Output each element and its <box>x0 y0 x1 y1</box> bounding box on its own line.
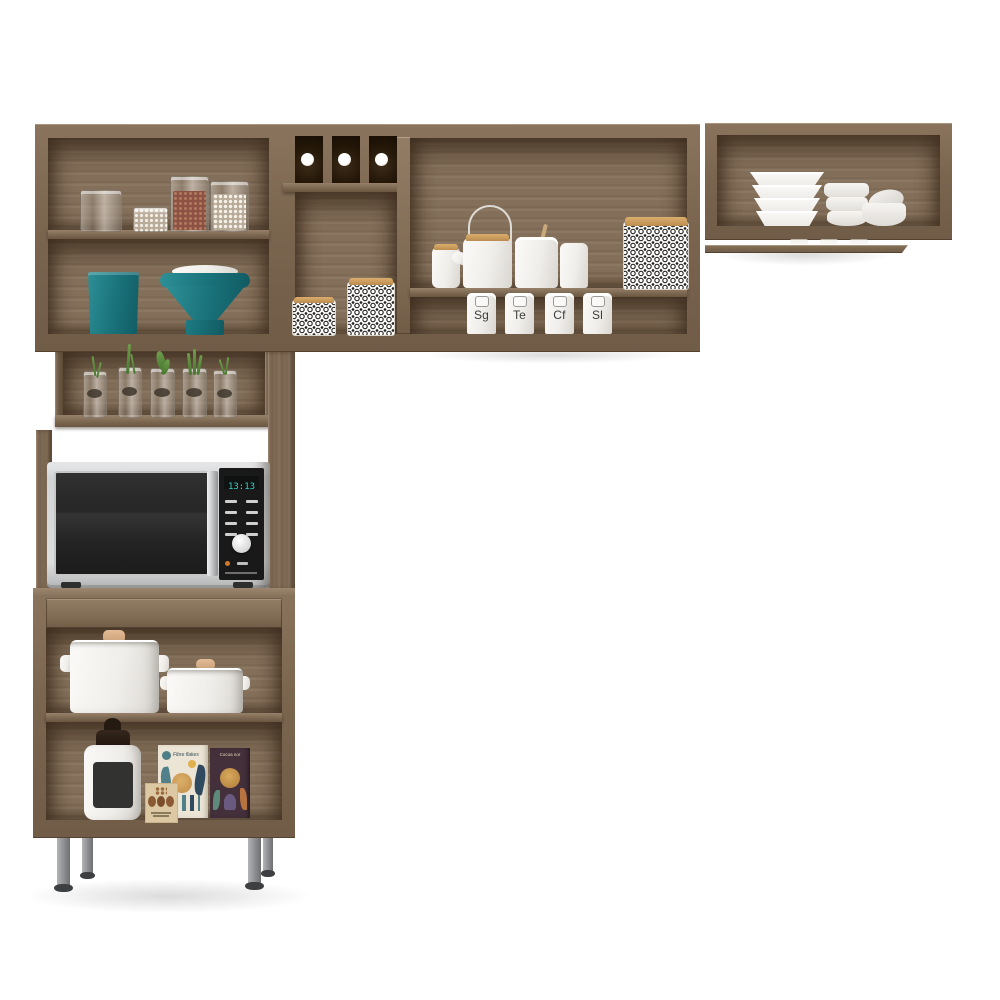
microwave-brand-line <box>225 572 257 574</box>
canister-label: Sl <box>583 308 612 322</box>
teapot-body <box>463 237 512 288</box>
square-bowl <box>756 211 818 226</box>
herb-jar <box>150 368 175 418</box>
cocoa-art-leaf <box>224 794 236 810</box>
canister-clamp <box>513 296 527 307</box>
wine-slot <box>369 136 397 183</box>
cabinet-leg-back-right <box>263 838 273 874</box>
wine-bottle <box>375 153 388 166</box>
leg-foot <box>261 870 275 877</box>
kitchen-cabinet-product-photo: Sg Te Cf Sl <box>0 0 1000 1000</box>
cup-glimpse <box>820 239 838 244</box>
spice-canister-sl: Sl <box>583 293 612 334</box>
herb-jar <box>182 368 207 418</box>
square-bowl <box>752 185 822 200</box>
cereal-art-leaf <box>192 764 208 795</box>
tower-right-post <box>268 352 295 590</box>
bean-cluster <box>155 787 167 795</box>
cocoa-box: Cocoa nor <box>210 748 250 818</box>
spice-canister-te: Te <box>505 293 534 334</box>
teal-canister <box>87 272 140 334</box>
herb-jar <box>118 367 142 418</box>
microwave-button <box>225 511 237 514</box>
cabinet-leg-front-right <box>248 838 261 886</box>
white-beans-fill <box>213 194 246 230</box>
wine-bottle <box>338 153 351 166</box>
spice-canister-cf: Cf <box>545 293 574 334</box>
canister-clamp <box>591 296 605 307</box>
glass-jar-white-beans-tall <box>210 181 249 232</box>
cereal-badge <box>162 751 171 760</box>
microwave-dial <box>232 534 251 553</box>
herb-jar-label <box>154 388 170 397</box>
microwave-button <box>246 522 258 525</box>
cereal-title: Fibre flakes <box>173 752 207 758</box>
base-cabinet-top-edge <box>33 588 295 597</box>
teal-funnel-rim <box>160 273 250 288</box>
right-cabinet-slot <box>705 238 905 245</box>
leg-foot <box>54 884 73 892</box>
small-bowl <box>862 203 906 226</box>
teapot-lid <box>466 234 509 241</box>
microwave-display: 13:13 <box>224 476 259 489</box>
wine-slot <box>295 136 323 183</box>
round-bowl <box>827 211 867 226</box>
large-white-jar <box>515 237 558 288</box>
pattern-square-canister <box>623 222 689 290</box>
pot-large <box>70 640 159 713</box>
cup-glimpse <box>850 239 868 244</box>
cocoa-art-circle <box>220 768 240 788</box>
middle-cabinet-divider <box>397 137 410 334</box>
teal-funnel-base <box>186 320 224 335</box>
microwave-button <box>225 500 237 503</box>
microwave-indicator <box>225 561 230 566</box>
bean-art <box>148 796 156 807</box>
pattern-canister-large <box>347 282 395 336</box>
wine-bottle <box>301 153 314 166</box>
pot-small <box>167 668 243 713</box>
cocoa-title: Cocoa nor <box>210 752 250 757</box>
wine-slot <box>332 136 360 183</box>
cabinet-leg-back-left <box>82 838 93 876</box>
microwave-door-handle <box>207 471 218 576</box>
spice-canister-sg: Sg <box>467 293 496 334</box>
cereal-art-dot <box>188 760 196 768</box>
microwave-button <box>246 511 258 514</box>
canister-clamp <box>553 296 567 307</box>
glass-jar-empty <box>80 190 122 232</box>
herb-jar <box>213 370 237 418</box>
herb-jar-label <box>122 387 137 396</box>
glass-jar-red-beans <box>170 176 209 232</box>
microwave: 13:13 <box>47 462 270 588</box>
canister-clamp <box>475 296 489 307</box>
cocoa-art-leaf <box>213 790 220 810</box>
wine-rack-bottom-rail <box>283 183 397 192</box>
square-bowl <box>754 198 820 213</box>
microwave-switch-mark <box>237 562 248 565</box>
base-cabinet-drawer <box>46 598 282 628</box>
right-cabinet-lower-rail <box>705 245 908 253</box>
microwave-door <box>54 471 210 576</box>
pattern-canister-lid <box>294 297 334 303</box>
cup-glimpse <box>790 239 808 244</box>
canister-label: Te <box>505 308 534 322</box>
chalkboard-label <box>93 762 133 808</box>
microwave-button <box>246 500 258 503</box>
leg-foot <box>245 882 264 890</box>
jar-wood-lid <box>434 244 458 250</box>
chalkboard-jar <box>84 745 141 820</box>
canister-label: Cf <box>545 308 574 322</box>
square-bowl-stack <box>750 172 824 187</box>
microwave-time: 13:13 <box>228 482 255 492</box>
pattern-square-lid <box>625 217 687 226</box>
pattern-canister-lid <box>349 278 393 285</box>
bean-art <box>166 796 174 807</box>
wine-rack <box>295 136 398 183</box>
cocoa-art-leaf <box>240 788 247 810</box>
red-beans-fill <box>173 191 206 230</box>
bean-art <box>157 796 165 807</box>
base-cabinet-shelf <box>46 713 282 722</box>
cabinet-leg-front-left <box>57 838 70 888</box>
herb-jar-label <box>87 389 102 398</box>
herb-jar-label <box>217 389 232 398</box>
card-text-line <box>153 815 169 817</box>
microwave-button-grid <box>225 494 258 538</box>
herb-jar-label <box>186 388 202 397</box>
canister-label: Sg <box>467 308 496 322</box>
leg-foot <box>80 872 95 879</box>
glass-jar-white-beans-small <box>133 207 168 232</box>
microwave-control-panel: 13:13 <box>219 468 264 580</box>
microwave-button <box>225 522 237 525</box>
small-white-jar <box>560 243 588 288</box>
coffee-bean-card <box>145 783 178 823</box>
herb-sprig <box>193 349 196 375</box>
pattern-canister-small <box>292 300 336 336</box>
card-text-line <box>151 812 171 814</box>
herb-jar <box>83 371 107 418</box>
